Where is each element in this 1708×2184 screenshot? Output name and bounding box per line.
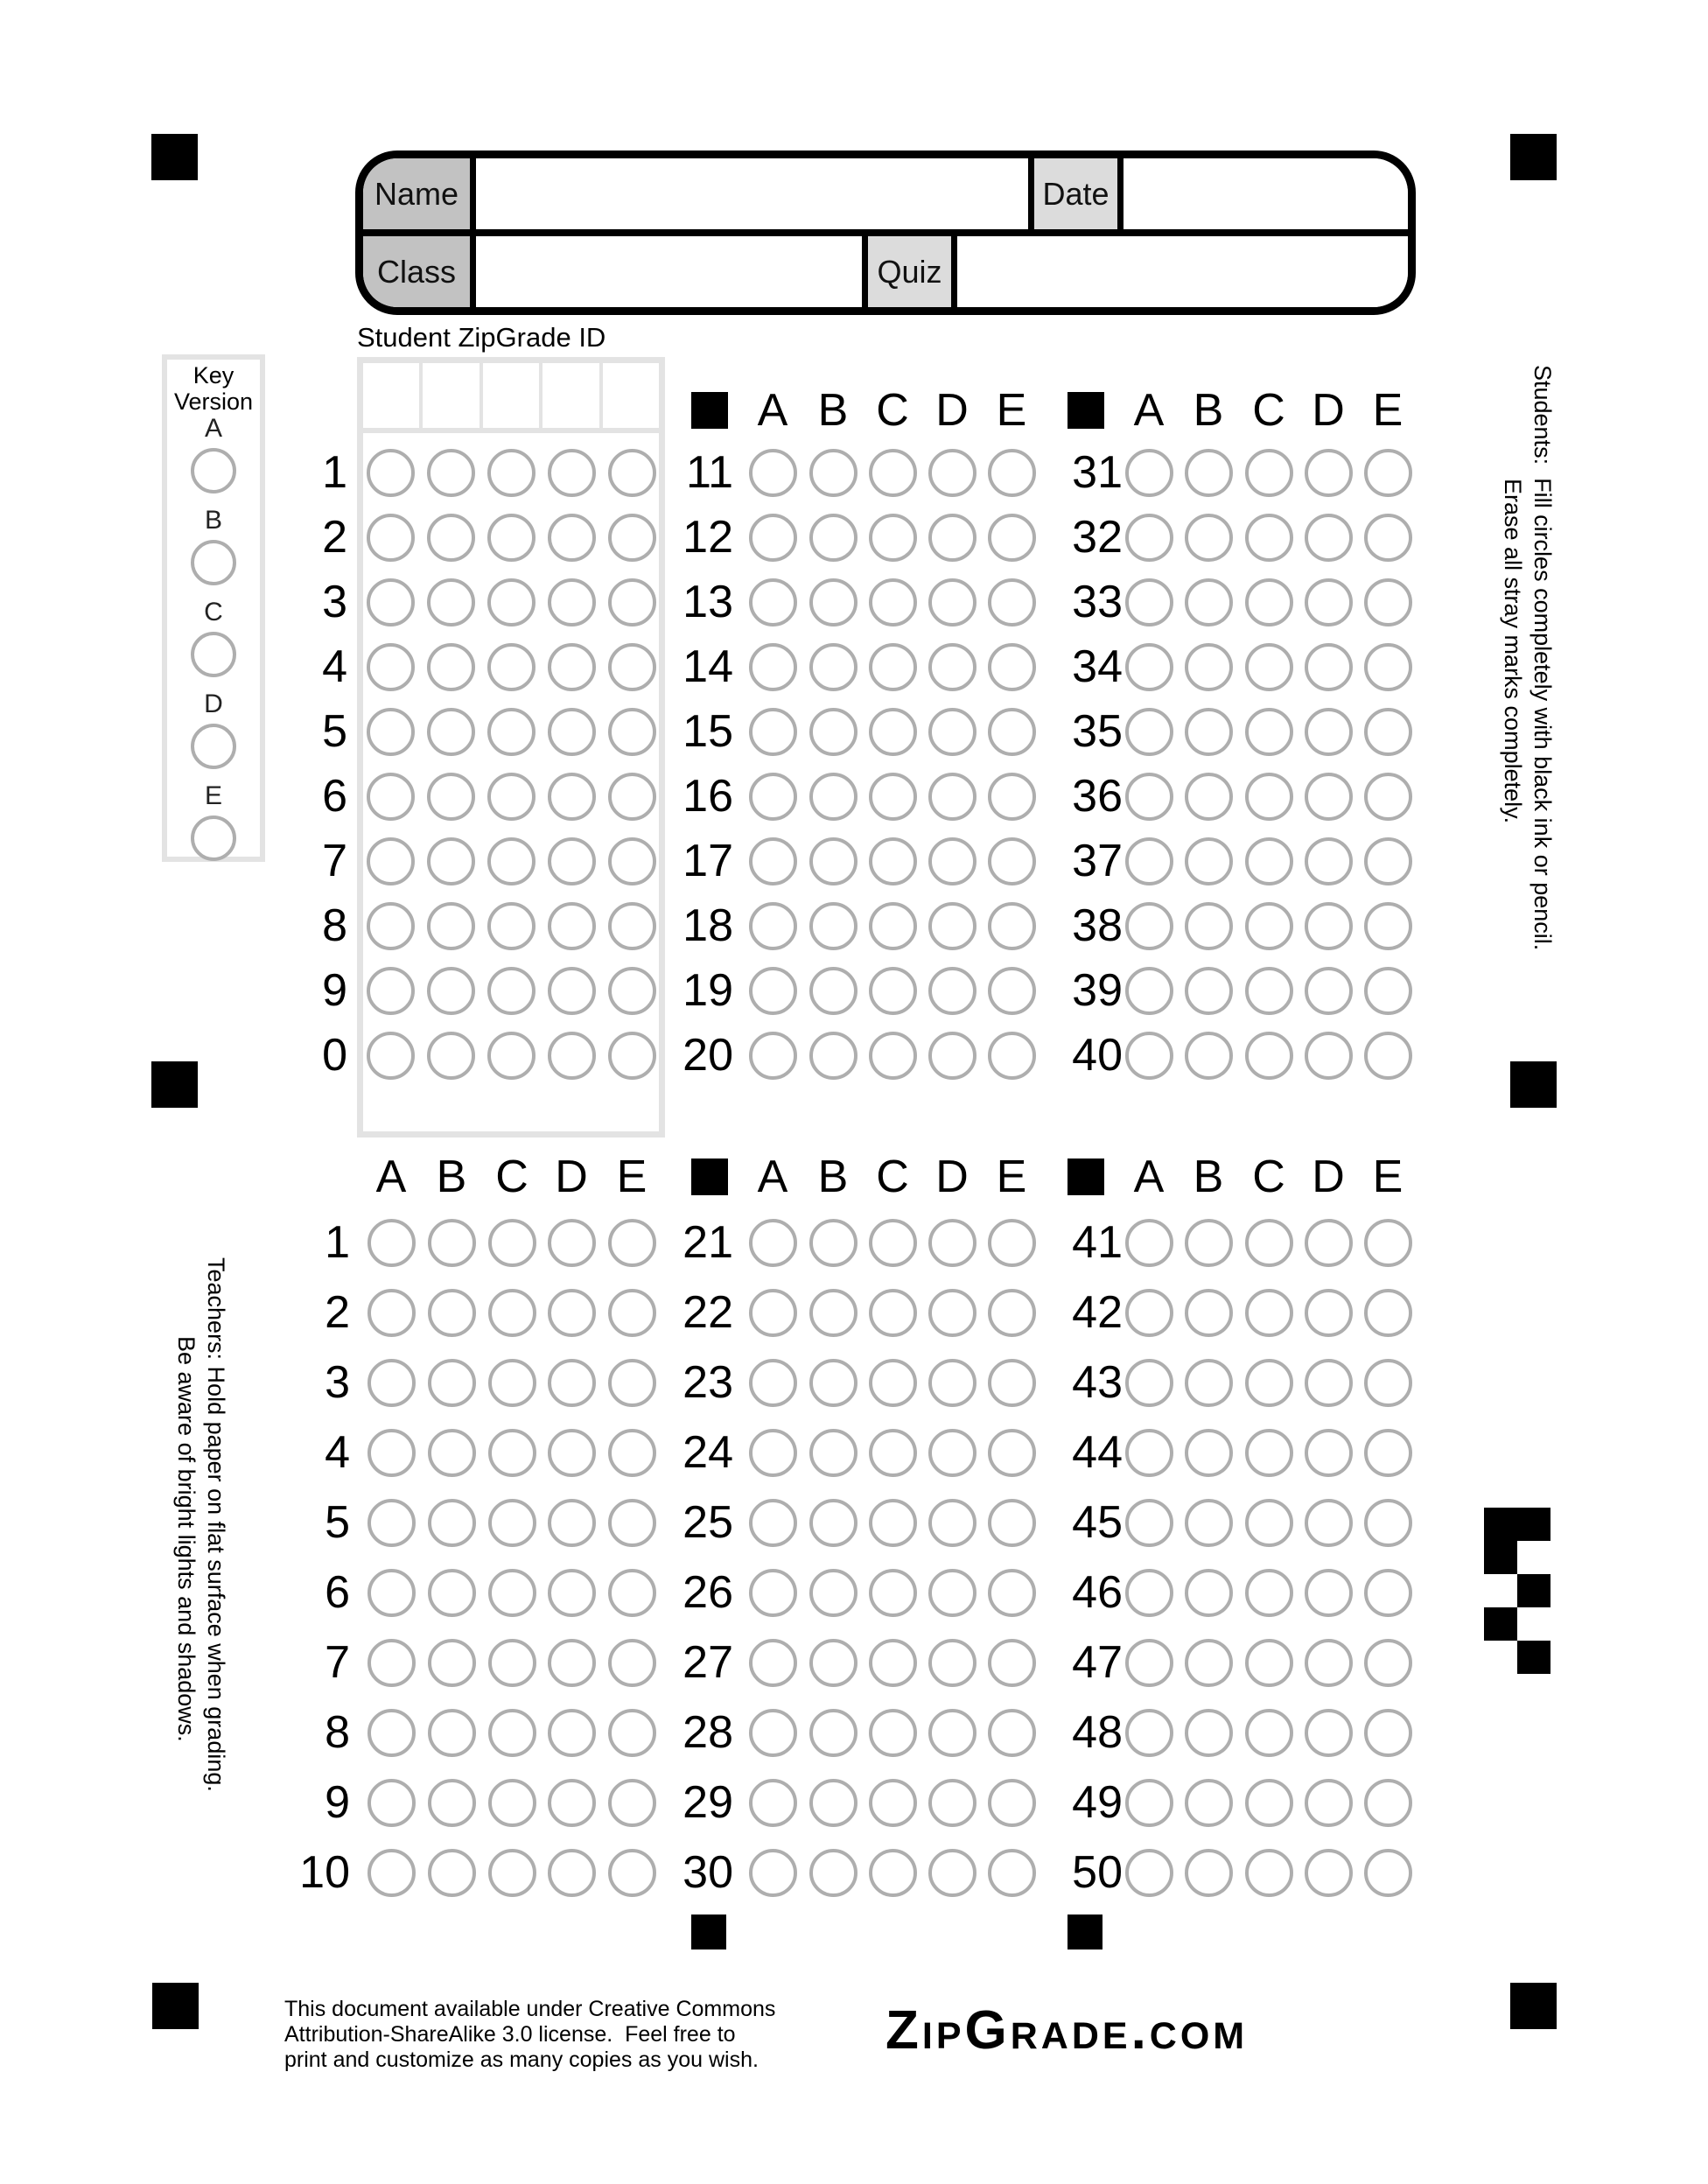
q10-D-bubble[interactable] xyxy=(548,1849,596,1897)
q24-A-bubble[interactable] xyxy=(749,1429,797,1477)
q35-B-bubble[interactable] xyxy=(1185,708,1233,756)
q37-A-bubble[interactable] xyxy=(1125,837,1173,885)
q14-C-bubble[interactable] xyxy=(869,643,917,691)
q3-A-bubble[interactable] xyxy=(367,1359,416,1407)
q50-E-bubble[interactable] xyxy=(1364,1849,1412,1897)
registration-mark-mid-right xyxy=(1510,1061,1557,1108)
q22-B-bubble[interactable] xyxy=(809,1289,857,1337)
q34-B-bubble[interactable] xyxy=(1185,643,1233,691)
q26-B-bubble[interactable] xyxy=(809,1569,857,1617)
q11-A-bubble[interactable] xyxy=(749,449,797,497)
q6-D-bubble[interactable] xyxy=(548,1569,596,1617)
q14-D-bubble[interactable] xyxy=(928,643,976,691)
q32-D-bubble[interactable] xyxy=(1305,514,1353,562)
id-row8-col5-bubble[interactable] xyxy=(608,902,656,950)
q7-D-bubble[interactable] xyxy=(548,1639,596,1687)
q16-B-bubble[interactable] xyxy=(809,773,857,821)
id-digit-3-label: 3 xyxy=(207,579,347,625)
q2-B-bubble[interactable] xyxy=(428,1289,476,1337)
q16-D-bubble[interactable] xyxy=(928,773,976,821)
id-row6-col4-bubble[interactable] xyxy=(548,773,596,821)
id-row0-col4-bubble[interactable] xyxy=(548,1032,596,1080)
q48-E-bubble[interactable] xyxy=(1364,1709,1412,1757)
q2-D-bubble[interactable] xyxy=(548,1289,596,1337)
q33-E-bubble[interactable] xyxy=(1364,578,1412,626)
q17-B-bubble[interactable] xyxy=(809,837,857,885)
q42-A-bubble[interactable] xyxy=(1125,1289,1173,1337)
id-row3-col4-bubble[interactable] xyxy=(548,578,596,626)
q40-E-bubble[interactable] xyxy=(1364,1032,1412,1080)
q32-C-bubble[interactable] xyxy=(1245,514,1293,562)
q25-C-bubble[interactable] xyxy=(869,1499,917,1547)
q34-A-bubble[interactable] xyxy=(1125,643,1173,691)
id-row9-col2-bubble[interactable] xyxy=(427,967,475,1015)
q2-C-bubble[interactable] xyxy=(488,1289,536,1337)
q1-A-bubble[interactable] xyxy=(367,1219,416,1267)
q42-B-bubble[interactable] xyxy=(1185,1289,1233,1337)
q50-A-bubble[interactable] xyxy=(1125,1849,1173,1897)
id-row2-col4-bubble[interactable] xyxy=(548,514,596,562)
q46-E-bubble[interactable] xyxy=(1364,1569,1412,1617)
q34-D-bubble[interactable] xyxy=(1305,643,1353,691)
q24-B-bubble[interactable] xyxy=(809,1429,857,1477)
q44-B-bubble[interactable] xyxy=(1185,1429,1233,1477)
q23-D-bubble[interactable] xyxy=(928,1359,976,1407)
id-row7-col3-bubble[interactable] xyxy=(487,837,535,885)
q4-A-bubble[interactable] xyxy=(367,1429,416,1477)
q8-C-bubble[interactable] xyxy=(488,1709,536,1757)
q35-A-bubble[interactable] xyxy=(1125,708,1173,756)
q1-C-bubble[interactable] xyxy=(488,1219,536,1267)
class-input[interactable] xyxy=(476,236,862,307)
key-D-bubble[interactable] xyxy=(191,724,236,769)
id-row2-col3-bubble[interactable] xyxy=(487,514,535,562)
q36-D-bubble[interactable] xyxy=(1305,773,1353,821)
q7-C-bubble[interactable] xyxy=(488,1639,536,1687)
q30-B-bubble[interactable] xyxy=(809,1849,857,1897)
question-38-number: 38 xyxy=(983,903,1123,948)
q17-C-bubble[interactable] xyxy=(869,837,917,885)
q37-B-bubble[interactable] xyxy=(1185,837,1233,885)
q20-A-bubble[interactable] xyxy=(749,1032,797,1080)
q33-A-bubble[interactable] xyxy=(1125,578,1173,626)
question-35-number: 35 xyxy=(983,709,1123,754)
q17-D-bubble[interactable] xyxy=(928,837,976,885)
id-row9-col3-bubble[interactable] xyxy=(487,967,535,1015)
q32-E-bubble[interactable] xyxy=(1364,514,1412,562)
q50-B-bubble[interactable] xyxy=(1185,1849,1233,1897)
key-A-bubble[interactable] xyxy=(191,448,236,493)
q30-D-bubble[interactable] xyxy=(928,1849,976,1897)
q1-B-bubble[interactable] xyxy=(428,1219,476,1267)
q4-C-bubble[interactable] xyxy=(488,1429,536,1477)
q16-C-bubble[interactable] xyxy=(869,773,917,821)
id-row4-col2-bubble[interactable] xyxy=(427,643,475,691)
id-write-in-cell-4[interactable] xyxy=(542,363,602,428)
q4-B-bubble[interactable] xyxy=(428,1429,476,1477)
id-row2-col1-bubble[interactable] xyxy=(367,514,415,562)
q47-A-bubble[interactable] xyxy=(1125,1639,1173,1687)
q44-E-bubble[interactable] xyxy=(1364,1429,1412,1477)
q32-B-bubble[interactable] xyxy=(1185,514,1233,562)
id-write-in-cell-1[interactable] xyxy=(363,363,423,428)
q24-D-bubble[interactable] xyxy=(928,1429,976,1477)
q38-D-bubble[interactable] xyxy=(1305,902,1353,950)
q13-A-bubble[interactable] xyxy=(749,578,797,626)
q28-B-bubble[interactable] xyxy=(809,1709,857,1757)
q36-C-bubble[interactable] xyxy=(1245,773,1293,821)
id-row6-col2-bubble[interactable] xyxy=(427,773,475,821)
q49-D-bubble[interactable] xyxy=(1305,1779,1353,1827)
q11-C-bubble[interactable] xyxy=(869,449,917,497)
id-row8-col4-bubble[interactable] xyxy=(548,902,596,950)
q35-D-bubble[interactable] xyxy=(1305,708,1353,756)
q14-A-bubble[interactable] xyxy=(749,643,797,691)
q9-B-bubble[interactable] xyxy=(428,1779,476,1827)
q31-E-bubble[interactable] xyxy=(1364,449,1412,497)
q13-D-bubble[interactable] xyxy=(928,578,976,626)
question-7-number: 7 xyxy=(210,1640,350,1685)
q12-B-bubble[interactable] xyxy=(809,514,857,562)
q13-C-bubble[interactable] xyxy=(869,578,917,626)
id-row5-col3-bubble[interactable] xyxy=(487,708,535,756)
q25-B-bubble[interactable] xyxy=(809,1499,857,1547)
q41-D-bubble[interactable] xyxy=(1305,1219,1353,1267)
student-info-box: Name Date Class Quiz xyxy=(355,150,1416,315)
q49-B-bubble[interactable] xyxy=(1185,1779,1233,1827)
q38-B-bubble[interactable] xyxy=(1185,902,1233,950)
quiz-input[interactable] xyxy=(957,236,1408,307)
id-row5-col2-bubble[interactable] xyxy=(427,708,475,756)
q39-D-bubble[interactable] xyxy=(1305,967,1353,1015)
question-21-number: 21 xyxy=(593,1220,733,1265)
key-B-bubble[interactable] xyxy=(191,540,236,585)
q36-E-bubble[interactable] xyxy=(1364,773,1412,821)
id-row3-col1-bubble[interactable] xyxy=(367,578,415,626)
q5-B-bubble[interactable] xyxy=(428,1499,476,1547)
q37-D-bubble[interactable] xyxy=(1305,837,1353,885)
id-row8-col3-bubble[interactable] xyxy=(487,902,535,950)
q19-A-bubble[interactable] xyxy=(749,967,797,1015)
id-row0-col5-bubble[interactable] xyxy=(608,1032,656,1080)
q15-B-bubble[interactable] xyxy=(809,708,857,756)
q31-A-bubble[interactable] xyxy=(1125,449,1173,497)
q18-B-bubble[interactable] xyxy=(809,902,857,950)
q46-C-bubble[interactable] xyxy=(1245,1569,1293,1617)
q40-C-bubble[interactable] xyxy=(1245,1032,1293,1080)
q44-D-bubble[interactable] xyxy=(1305,1429,1353,1477)
q27-D-bubble[interactable] xyxy=(928,1639,976,1687)
id-row6-col5-bubble[interactable] xyxy=(608,773,656,821)
question-46-number: 46 xyxy=(983,1570,1123,1615)
q33-B-bubble[interactable] xyxy=(1185,578,1233,626)
name-date-row: Name Date xyxy=(363,158,1408,229)
q41-C-bubble[interactable] xyxy=(1245,1219,1293,1267)
q49-C-bubble[interactable] xyxy=(1245,1779,1293,1827)
q10-B-bubble[interactable] xyxy=(428,1849,476,1897)
q42-C-bubble[interactable] xyxy=(1245,1289,1293,1337)
q43-C-bubble[interactable] xyxy=(1245,1359,1293,1407)
q48-C-bubble[interactable] xyxy=(1245,1709,1293,1757)
q35-C-bubble[interactable] xyxy=(1245,708,1293,756)
id-row7-col5-bubble[interactable] xyxy=(608,837,656,885)
q21-B-bubble[interactable] xyxy=(809,1219,857,1267)
q28-D-bubble[interactable] xyxy=(928,1709,976,1757)
id-row5-col1-bubble[interactable] xyxy=(367,708,415,756)
q6-B-bubble[interactable] xyxy=(428,1569,476,1617)
q22-C-bubble[interactable] xyxy=(869,1289,917,1337)
q12-A-bubble[interactable] xyxy=(749,514,797,562)
q44-A-bubble[interactable] xyxy=(1125,1429,1173,1477)
q26-A-bubble[interactable] xyxy=(749,1569,797,1617)
q36-A-bubble[interactable] xyxy=(1125,773,1173,821)
id-row8-col1-bubble[interactable] xyxy=(367,902,415,950)
id-row0-col3-bubble[interactable] xyxy=(487,1032,535,1080)
q25-A-bubble[interactable] xyxy=(749,1499,797,1547)
id-row3-col2-bubble[interactable] xyxy=(427,578,475,626)
id-row1-col3-bubble[interactable] xyxy=(487,449,535,497)
q45-D-bubble[interactable] xyxy=(1305,1499,1353,1547)
q43-A-bubble[interactable] xyxy=(1125,1359,1173,1407)
q45-E-bubble[interactable] xyxy=(1364,1499,1412,1547)
q34-E-bubble[interactable] xyxy=(1364,643,1412,691)
q42-D-bubble[interactable] xyxy=(1305,1289,1353,1337)
q25-D-bubble[interactable] xyxy=(928,1499,976,1547)
q37-E-bubble[interactable] xyxy=(1364,837,1412,885)
id-row0-col2-bubble[interactable] xyxy=(427,1032,475,1080)
id-row4-col5-bubble[interactable] xyxy=(608,643,656,691)
id-row1-col5-bubble[interactable] xyxy=(608,449,656,497)
q19-B-bubble[interactable] xyxy=(809,967,857,1015)
q10-A-bubble[interactable] xyxy=(367,1849,416,1897)
q21-A-bubble[interactable] xyxy=(749,1219,797,1267)
id-row9-col5-bubble[interactable] xyxy=(608,967,656,1015)
id-row2-col2-bubble[interactable] xyxy=(427,514,475,562)
q35-E-bubble[interactable] xyxy=(1364,708,1412,756)
q8-D-bubble[interactable] xyxy=(548,1709,596,1757)
q45-C-bubble[interactable] xyxy=(1245,1499,1293,1547)
q18-C-bubble[interactable] xyxy=(869,902,917,950)
q31-B-bubble[interactable] xyxy=(1185,449,1233,497)
q18-D-bubble[interactable] xyxy=(928,902,976,950)
q39-C-bubble[interactable] xyxy=(1245,967,1293,1015)
q7-B-bubble[interactable] xyxy=(428,1639,476,1687)
id-row5-col5-bubble[interactable] xyxy=(608,708,656,756)
question-30-number: 30 xyxy=(593,1850,733,1895)
q22-A-bubble[interactable] xyxy=(749,1289,797,1337)
q20-D-bubble[interactable] xyxy=(928,1032,976,1080)
q23-A-bubble[interactable] xyxy=(749,1359,797,1407)
q20-B-bubble[interactable] xyxy=(809,1032,857,1080)
q2-A-bubble[interactable] xyxy=(367,1289,416,1337)
id-row3-col5-bubble[interactable] xyxy=(608,578,656,626)
q41-E-bubble[interactable] xyxy=(1364,1219,1412,1267)
q29-D-bubble[interactable] xyxy=(928,1779,976,1827)
q19-C-bubble[interactable] xyxy=(869,967,917,1015)
id-row5-col4-bubble[interactable] xyxy=(548,708,596,756)
q40-B-bubble[interactable] xyxy=(1185,1032,1233,1080)
q6-A-bubble[interactable] xyxy=(367,1569,416,1617)
q48-D-bubble[interactable] xyxy=(1305,1709,1353,1757)
id-row7-col2-bubble[interactable] xyxy=(427,837,475,885)
q23-C-bubble[interactable] xyxy=(869,1359,917,1407)
q5-A-bubble[interactable] xyxy=(367,1499,416,1547)
q15-C-bubble[interactable] xyxy=(869,708,917,756)
q39-E-bubble[interactable] xyxy=(1364,967,1412,1015)
q5-C-bubble[interactable] xyxy=(488,1499,536,1547)
q6-C-bubble[interactable] xyxy=(488,1569,536,1617)
q47-E-bubble[interactable] xyxy=(1364,1639,1412,1687)
q12-C-bubble[interactable] xyxy=(869,514,917,562)
q26-C-bubble[interactable] xyxy=(869,1569,917,1617)
q9-A-bubble[interactable] xyxy=(367,1779,416,1827)
q23-B-bubble[interactable] xyxy=(809,1359,857,1407)
q38-A-bubble[interactable] xyxy=(1125,902,1173,950)
q27-C-bubble[interactable] xyxy=(869,1639,917,1687)
q43-B-bubble[interactable] xyxy=(1185,1359,1233,1407)
q4-D-bubble[interactable] xyxy=(548,1429,596,1477)
q41-B-bubble[interactable] xyxy=(1185,1219,1233,1267)
q47-C-bubble[interactable] xyxy=(1245,1639,1293,1687)
q3-B-bubble[interactable] xyxy=(428,1359,476,1407)
q10-C-bubble[interactable] xyxy=(488,1849,536,1897)
q46-B-bubble[interactable] xyxy=(1185,1569,1233,1617)
q18-A-bubble[interactable] xyxy=(749,902,797,950)
q45-A-bubble[interactable] xyxy=(1125,1499,1173,1547)
id-row1-col1-bubble[interactable] xyxy=(367,449,415,497)
q13-B-bubble[interactable] xyxy=(809,578,857,626)
q27-B-bubble[interactable] xyxy=(809,1639,857,1687)
key-C-bubble[interactable] xyxy=(191,632,236,677)
id-row1-col4-bubble[interactable] xyxy=(548,449,596,497)
q30-A-bubble[interactable] xyxy=(749,1849,797,1897)
q21-C-bubble[interactable] xyxy=(869,1219,917,1267)
id-row7-col4-bubble[interactable] xyxy=(548,837,596,885)
id-row1-col2-bubble[interactable] xyxy=(427,449,475,497)
q46-D-bubble[interactable] xyxy=(1305,1569,1353,1617)
q19-D-bubble[interactable] xyxy=(928,967,976,1015)
q33-D-bubble[interactable] xyxy=(1305,578,1353,626)
q43-E-bubble[interactable] xyxy=(1364,1359,1412,1407)
id-row4-col1-bubble[interactable] xyxy=(367,643,415,691)
q49-E-bubble[interactable] xyxy=(1364,1779,1412,1827)
id-row6-col3-bubble[interactable] xyxy=(487,773,535,821)
q9-D-bubble[interactable] xyxy=(548,1779,596,1827)
q46-A-bubble[interactable] xyxy=(1125,1569,1173,1617)
q15-D-bubble[interactable] xyxy=(928,708,976,756)
q29-B-bubble[interactable] xyxy=(809,1779,857,1827)
q14-B-bubble[interactable] xyxy=(809,643,857,691)
id-write-in-cell-5[interactable] xyxy=(603,363,659,428)
date-input[interactable] xyxy=(1123,158,1408,229)
q21-30-header-letter-E: E xyxy=(997,1154,1027,1200)
name-input[interactable] xyxy=(476,158,1028,229)
q21-D-bubble[interactable] xyxy=(928,1219,976,1267)
key-E-bubble[interactable] xyxy=(191,815,236,861)
q9-C-bubble[interactable] xyxy=(488,1779,536,1827)
q40-D-bubble[interactable] xyxy=(1305,1032,1353,1080)
q7-A-bubble[interactable] xyxy=(367,1639,416,1687)
question-3-number: 3 xyxy=(210,1360,350,1405)
q31-D-bubble[interactable] xyxy=(1305,449,1353,497)
id-row0-col1-bubble[interactable] xyxy=(367,1032,415,1080)
q22-D-bubble[interactable] xyxy=(928,1289,976,1337)
question-29-number: 29 xyxy=(593,1780,733,1825)
q1-D-bubble[interactable] xyxy=(548,1219,596,1267)
q20-C-bubble[interactable] xyxy=(869,1032,917,1080)
id-row4-col3-bubble[interactable] xyxy=(487,643,535,691)
q42-E-bubble[interactable] xyxy=(1364,1289,1412,1337)
id-write-in-cell-2[interactable] xyxy=(423,363,482,428)
q30-C-bubble[interactable] xyxy=(869,1849,917,1897)
q11-B-bubble[interactable] xyxy=(809,449,857,497)
q12-D-bubble[interactable] xyxy=(928,514,976,562)
id-row2-col5-bubble[interactable] xyxy=(608,514,656,562)
q34-C-bubble[interactable] xyxy=(1245,643,1293,691)
q8-A-bubble[interactable] xyxy=(367,1709,416,1757)
q5-D-bubble[interactable] xyxy=(548,1499,596,1547)
q3-C-bubble[interactable] xyxy=(488,1359,536,1407)
q47-D-bubble[interactable] xyxy=(1305,1639,1353,1687)
q3-D-bubble[interactable] xyxy=(548,1359,596,1407)
quiz-label: Quiz xyxy=(862,236,957,307)
q17-A-bubble[interactable] xyxy=(749,837,797,885)
q37-C-bubble[interactable] xyxy=(1245,837,1293,885)
q26-D-bubble[interactable] xyxy=(928,1569,976,1617)
q15-A-bubble[interactable] xyxy=(749,708,797,756)
q16-A-bubble[interactable] xyxy=(749,773,797,821)
q28-C-bubble[interactable] xyxy=(869,1709,917,1757)
q38-E-bubble[interactable] xyxy=(1364,902,1412,950)
id-row6-col1-bubble[interactable] xyxy=(367,773,415,821)
q32-A-bubble[interactable] xyxy=(1125,514,1173,562)
id-row3-col3-bubble[interactable] xyxy=(487,578,535,626)
q31-C-bubble[interactable] xyxy=(1245,449,1293,497)
q48-A-bubble[interactable] xyxy=(1125,1709,1173,1757)
q41-A-bubble[interactable] xyxy=(1125,1219,1173,1267)
q45-B-bubble[interactable] xyxy=(1185,1499,1233,1547)
q47-B-bubble[interactable] xyxy=(1185,1639,1233,1687)
q29-C-bubble[interactable] xyxy=(869,1779,917,1827)
id-row9-col1-bubble[interactable] xyxy=(367,967,415,1015)
q27-A-bubble[interactable] xyxy=(749,1639,797,1687)
id-row8-col2-bubble[interactable] xyxy=(427,902,475,950)
id-row7-col1-bubble[interactable] xyxy=(367,837,415,885)
q1-10-header-letter-D: D xyxy=(555,1154,588,1200)
q48-B-bubble[interactable] xyxy=(1185,1709,1233,1757)
q29-A-bubble[interactable] xyxy=(749,1779,797,1827)
q40-A-bubble[interactable] xyxy=(1125,1032,1173,1080)
id-row9-col4-bubble[interactable] xyxy=(548,967,596,1015)
q44-C-bubble[interactable] xyxy=(1245,1429,1293,1477)
q33-C-bubble[interactable] xyxy=(1245,578,1293,626)
id-row4-col4-bubble[interactable] xyxy=(548,643,596,691)
q8-B-bubble[interactable] xyxy=(428,1709,476,1757)
q36-B-bubble[interactable] xyxy=(1185,773,1233,821)
q38-C-bubble[interactable] xyxy=(1245,902,1293,950)
q11-D-bubble[interactable] xyxy=(928,449,976,497)
q24-C-bubble[interactable] xyxy=(869,1429,917,1477)
q50-C-bubble[interactable] xyxy=(1245,1849,1293,1897)
q39-B-bubble[interactable] xyxy=(1185,967,1233,1015)
q49-A-bubble[interactable] xyxy=(1125,1779,1173,1827)
q28-A-bubble[interactable] xyxy=(749,1709,797,1757)
id-write-in-cell-3[interactable] xyxy=(483,363,542,428)
q50-D-bubble[interactable] xyxy=(1305,1849,1353,1897)
q1-10-header-letter-C: C xyxy=(495,1154,528,1200)
q39-A-bubble[interactable] xyxy=(1125,967,1173,1015)
q43-D-bubble[interactable] xyxy=(1305,1359,1353,1407)
